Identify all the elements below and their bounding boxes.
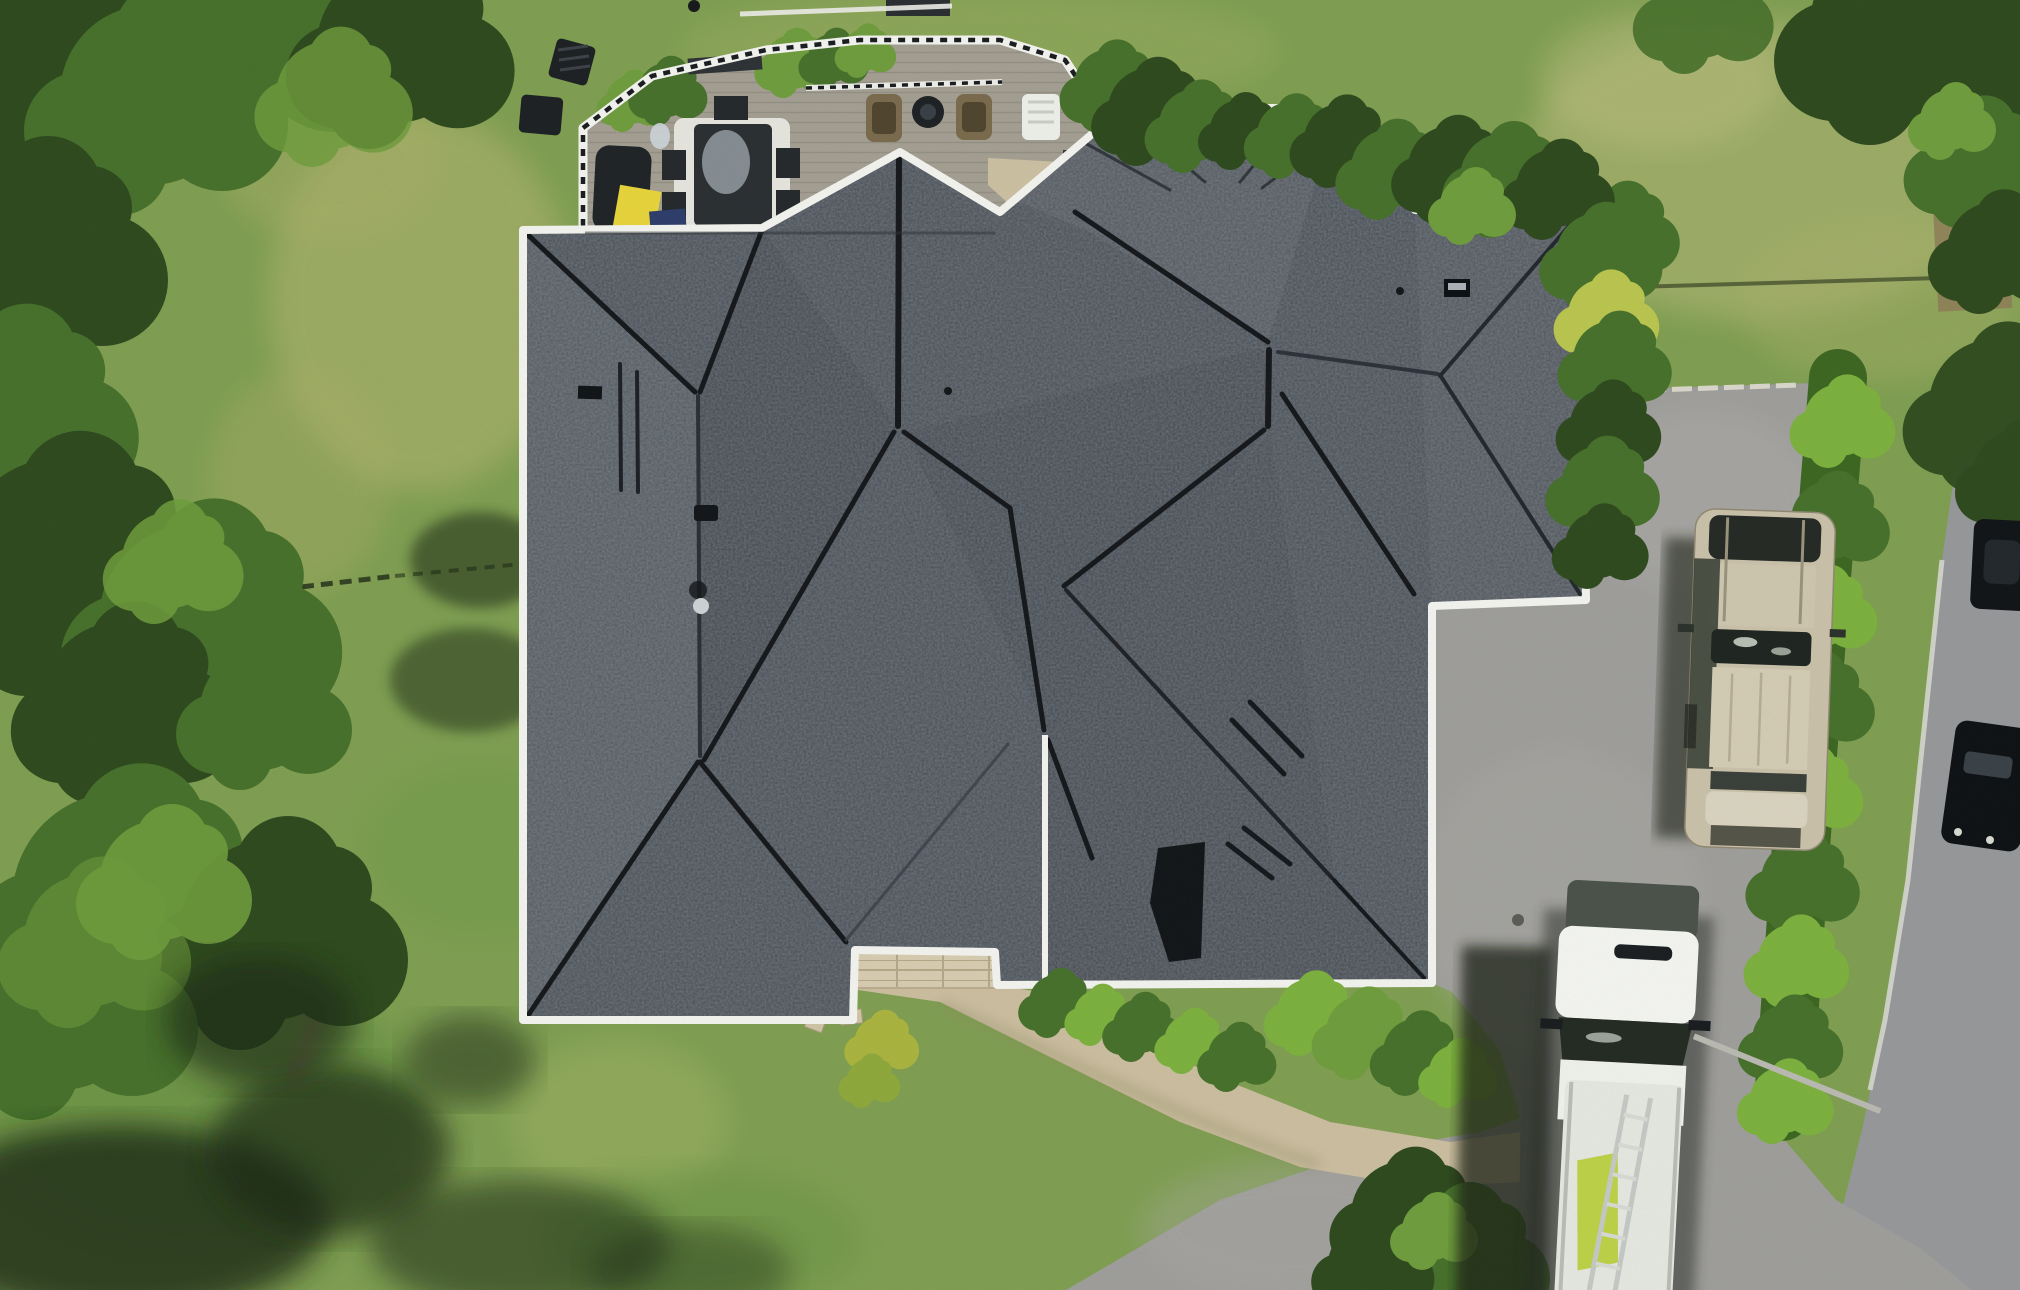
aerial-scene [0,0,2020,1290]
aerial-photo-stage [0,0,2020,1290]
photo-grain-overlay [0,0,2020,1290]
